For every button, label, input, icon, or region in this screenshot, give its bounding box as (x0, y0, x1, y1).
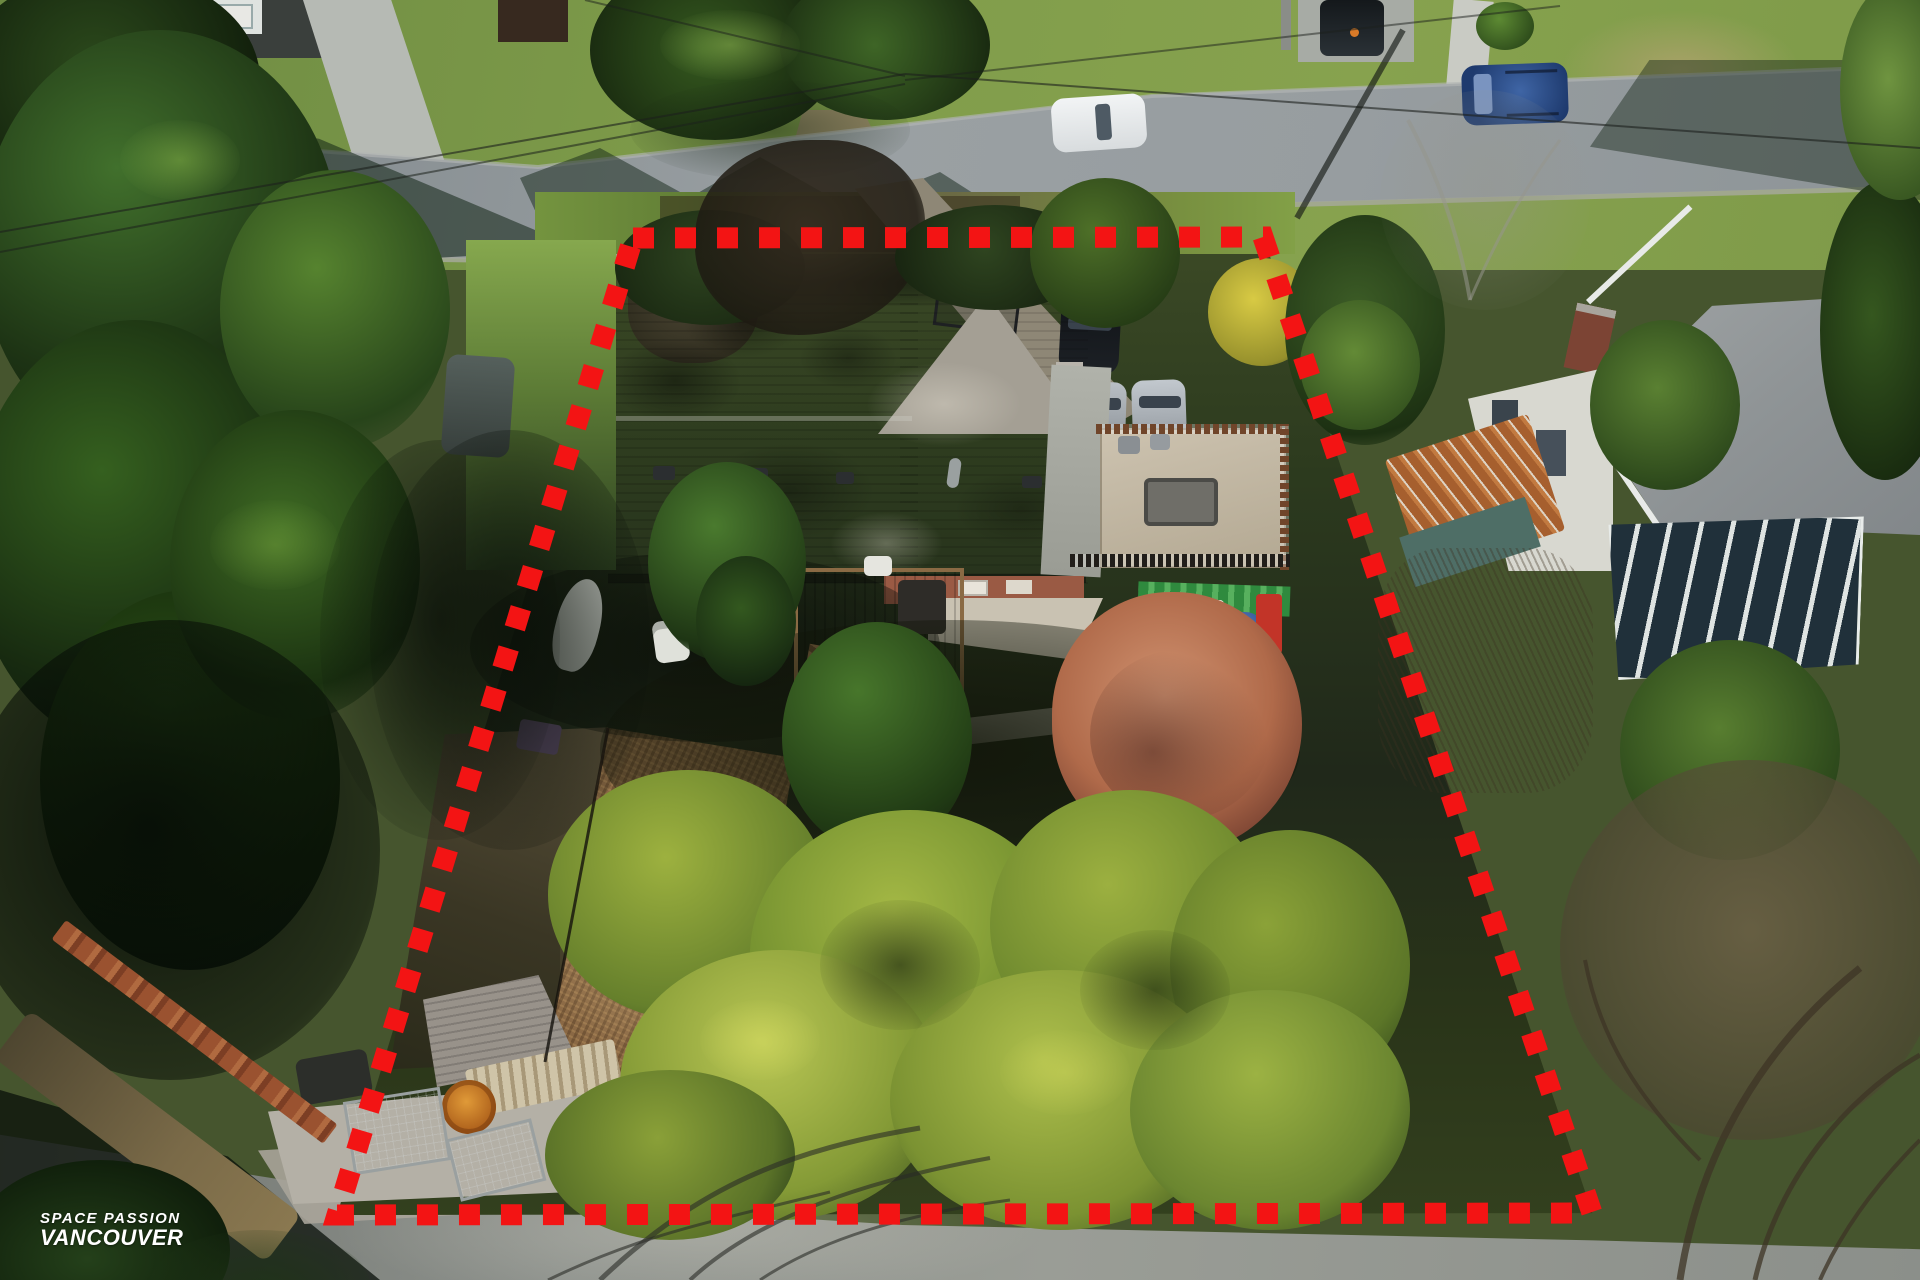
property-boundary-line (337, 237, 1592, 1215)
aerial-photo-stage: SPACE PASSION VANCOUVER (0, 0, 1920, 1280)
watermark: SPACE PASSION VANCOUVER (40, 1211, 183, 1249)
watermark-line-2: VANCOUVER (40, 1226, 183, 1249)
property-boundary-overlay (0, 0, 1920, 1280)
